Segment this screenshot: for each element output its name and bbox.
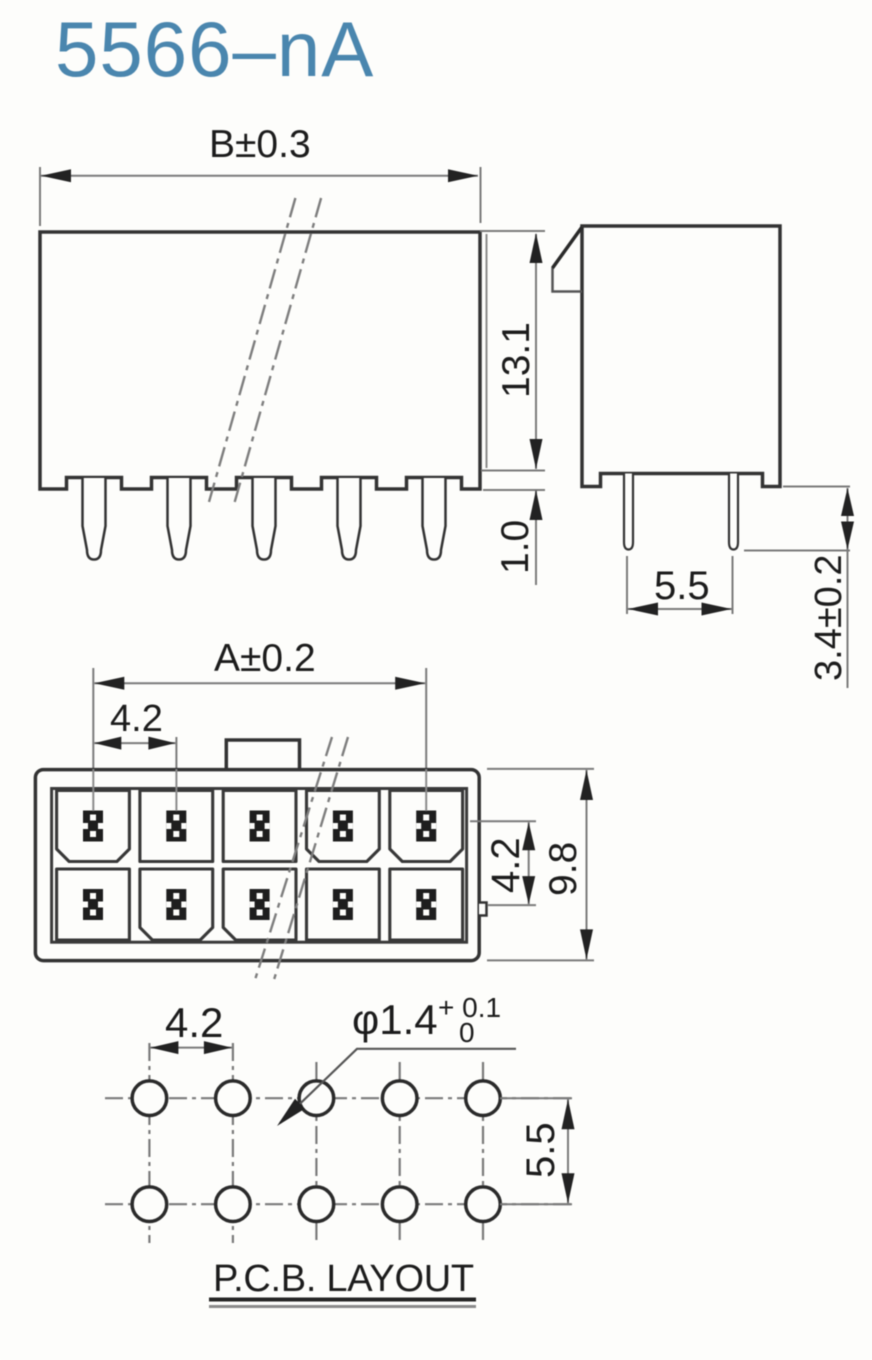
- svg-text:9.8: 9.8: [542, 842, 585, 896]
- svg-text:3.4±0.2: 3.4±0.2: [808, 554, 850, 681]
- svg-text:4.2: 4.2: [484, 837, 528, 893]
- svg-text:φ1.4: φ1.4: [352, 996, 438, 1043]
- svg-text:1.0: 1.0: [494, 520, 537, 574]
- svg-text:5566–nA: 5566–nA: [55, 5, 374, 93]
- svg-text:13.1: 13.1: [495, 322, 538, 398]
- svg-text:4.2: 4.2: [165, 999, 223, 1046]
- svg-text:4.2: 4.2: [110, 698, 163, 740]
- svg-text:5.5: 5.5: [519, 1122, 563, 1178]
- svg-text:5.5: 5.5: [654, 564, 710, 608]
- svg-text:A±0.2: A±0.2: [214, 637, 316, 680]
- svg-text:0: 0: [459, 1017, 475, 1048]
- svg-text:P.C.B. LAYOUT: P.C.B. LAYOUT: [213, 1258, 474, 1300]
- svg-text:B±0.3: B±0.3: [209, 123, 311, 166]
